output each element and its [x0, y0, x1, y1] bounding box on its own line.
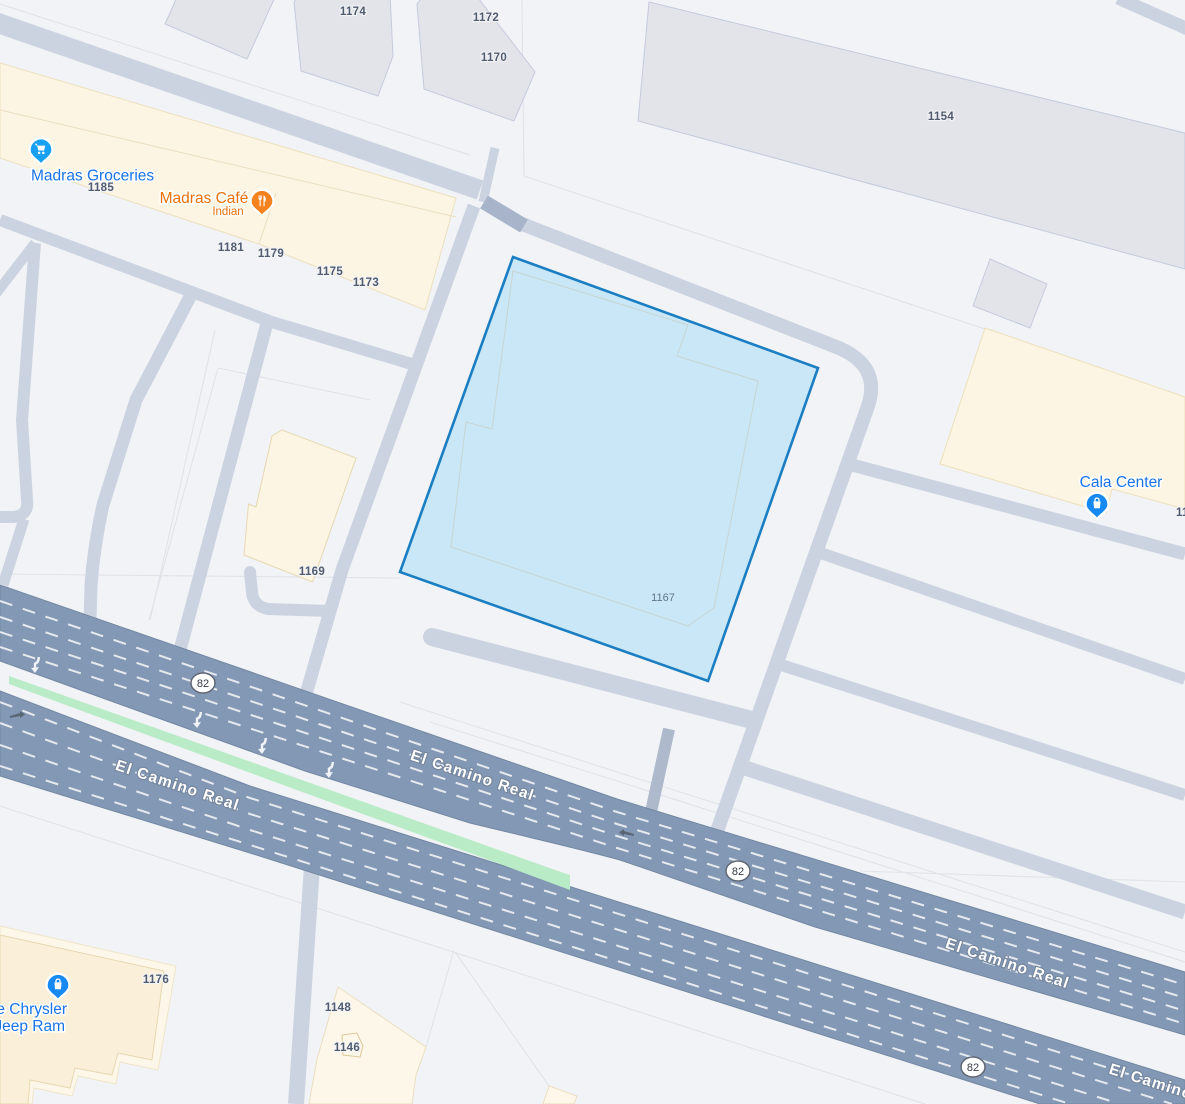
svg-text:Madras Groceries: Madras Groceries	[31, 168, 154, 185]
svg-text:11: 11	[1176, 507, 1185, 519]
svg-text:82: 82	[967, 1062, 979, 1074]
svg-text:1179: 1179	[258, 248, 284, 260]
svg-text:1170: 1170	[481, 52, 507, 64]
svg-text:1175: 1175	[317, 266, 343, 278]
svg-text:1174: 1174	[340, 6, 366, 18]
svg-text:e Jeep Ram: e Jeep Ram	[0, 1018, 65, 1035]
svg-text:1176: 1176	[143, 974, 169, 986]
svg-text:Cala Center: Cala Center	[1080, 474, 1163, 491]
svg-text:ale Chrysler: ale Chrysler	[0, 1001, 67, 1018]
svg-text:1169: 1169	[299, 566, 325, 578]
svg-text:Indian: Indian	[212, 206, 243, 218]
svg-text:82: 82	[732, 866, 744, 878]
svg-text:1172: 1172	[473, 12, 499, 24]
svg-text:1148: 1148	[325, 1002, 351, 1014]
svg-text:1173: 1173	[353, 277, 379, 289]
svg-text:1181: 1181	[218, 242, 244, 254]
svg-text:Madras Café: Madras Café	[160, 190, 249, 207]
svg-text:1167: 1167	[651, 592, 675, 604]
svg-text:82: 82	[197, 678, 209, 690]
svg-text:1146: 1146	[334, 1042, 360, 1054]
svg-text:1154: 1154	[928, 111, 954, 123]
